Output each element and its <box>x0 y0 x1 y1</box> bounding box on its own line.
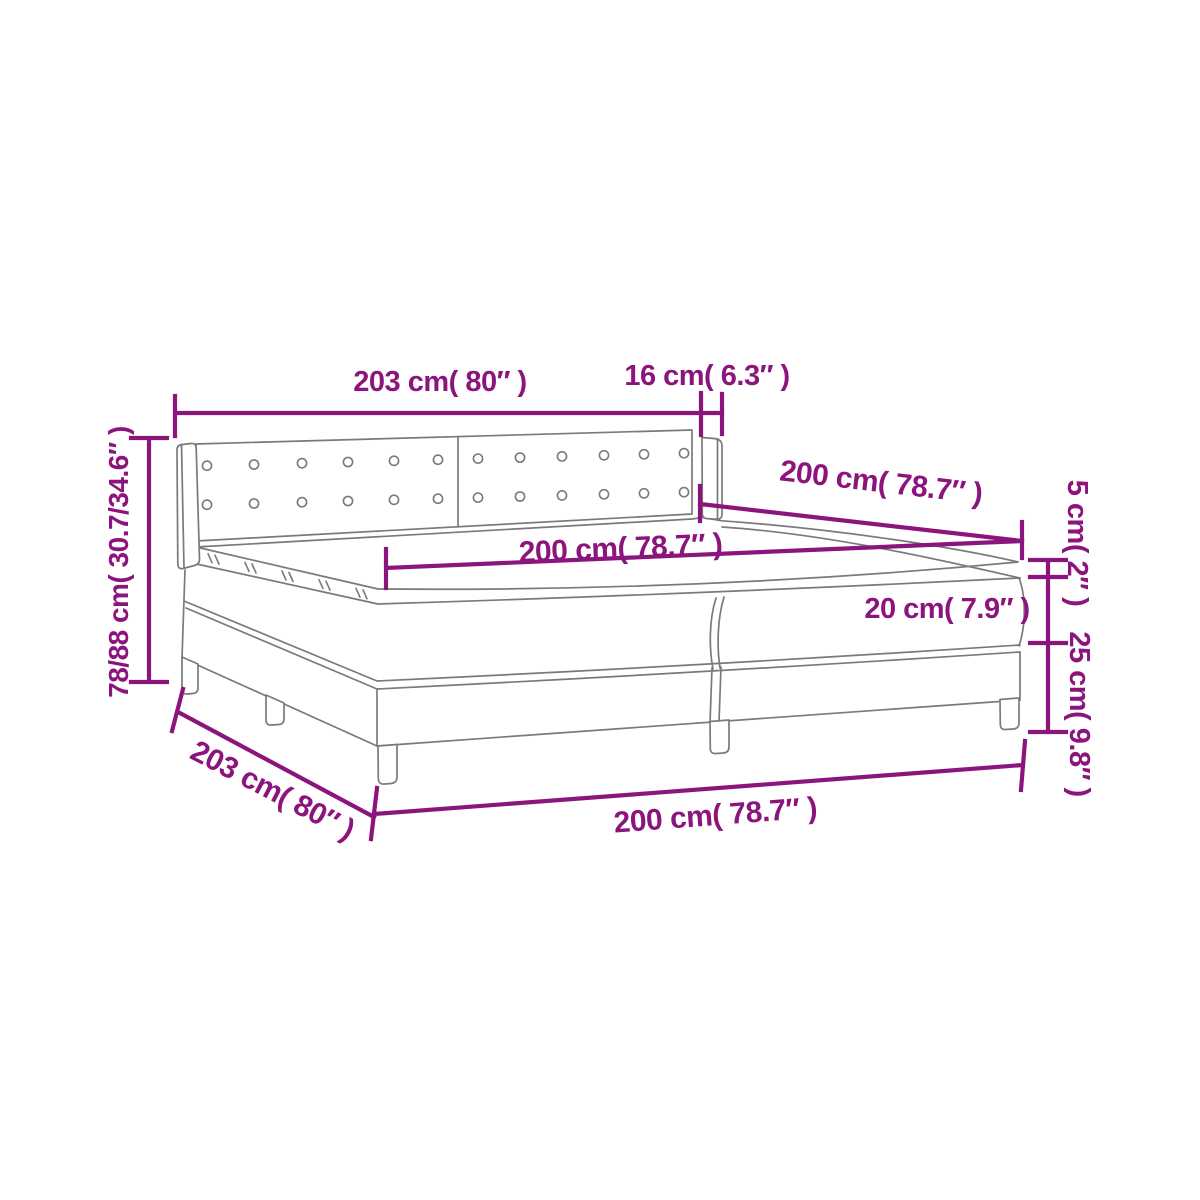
dim-label: 16 cm( 6.3″ ) <box>624 360 789 392</box>
headboard-button <box>343 496 352 505</box>
headboard-button <box>389 456 398 465</box>
bed-leg <box>266 695 284 725</box>
bed-legs <box>182 657 1019 784</box>
dim-label: 200 cm( 78.7″ ) <box>613 791 819 839</box>
headboard-button <box>202 461 211 470</box>
headboard-button <box>599 490 608 499</box>
dim-wing-depth: 16 cm( 6.3″ ) <box>624 360 789 434</box>
headboard-button <box>679 488 688 497</box>
headboard-button <box>515 492 524 501</box>
dim-line <box>175 393 722 436</box>
headboard-left-wing <box>177 443 200 568</box>
bed-dimension-diagram: 203 cm( 80″ ) 16 cm( 6.3″ ) 78/88 cm( 30… <box>0 0 1200 1200</box>
base-split-seam <box>710 667 721 723</box>
headboard-button <box>557 452 566 461</box>
headboard-button <box>297 498 306 507</box>
headboard-button <box>599 451 608 460</box>
headboard-button <box>639 489 648 498</box>
headboard-button <box>473 454 482 463</box>
dim-base-width: 200 cm( 78.7″ ) <box>371 741 1025 840</box>
bed-leg <box>1000 698 1019 730</box>
base-front-bottom-edge <box>377 700 1020 746</box>
headboard-button <box>639 450 648 459</box>
headboard-button <box>679 449 688 458</box>
dim-label-base: 25 cm( 9.8″ ) <box>1063 631 1095 796</box>
dim-label-topper: 5 cm( 2″ ) <box>1061 480 1093 607</box>
bed-leg <box>710 720 729 754</box>
headboard-button <box>557 491 566 500</box>
headboard-button <box>389 495 398 504</box>
headboard-button <box>473 493 482 502</box>
dim-label: 78/88 cm( 30.7/34.6″ ) <box>103 426 134 698</box>
headboard-button <box>202 500 211 509</box>
headboard-button <box>249 460 258 469</box>
bed-leg <box>378 745 397 785</box>
headboard-button <box>297 459 306 468</box>
headboard-button <box>515 453 524 462</box>
dim-label: 203 cm( 80″ ) <box>353 366 526 398</box>
headboard-button <box>433 494 442 503</box>
dim-label: 200 cm( 78.7″ ) <box>778 454 984 510</box>
diagram-page: 203 cm( 80″ ) 16 cm( 6.3″ ) 78/88 cm( 30… <box>0 0 1200 1200</box>
dim-bed-height: 78/88 cm( 30.7/34.6″ ) <box>103 426 167 698</box>
dim-line <box>1030 560 1066 732</box>
dim-label: 203 cm( 80″ ) <box>185 734 360 846</box>
dim-label-mattress: 20 cm( 7.9″ ) <box>864 593 1029 625</box>
headboard-button <box>433 455 442 464</box>
base-back-left-edge <box>182 570 185 658</box>
headboard-button <box>249 499 258 508</box>
headboard-button <box>343 457 352 466</box>
dim-line <box>131 438 167 682</box>
mattress-split-seam <box>710 597 724 669</box>
